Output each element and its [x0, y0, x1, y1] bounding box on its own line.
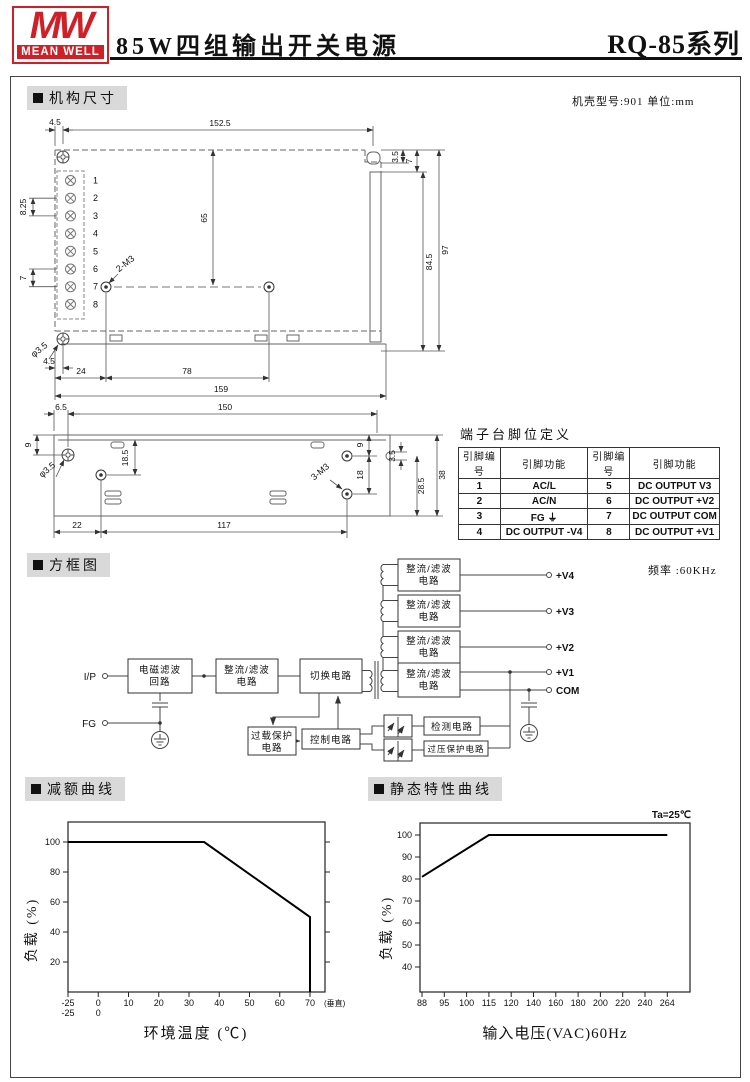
section-label: 减额曲线: [47, 779, 115, 799]
svg-text:7: 7: [93, 282, 98, 292]
svg-text:4.5: 4.5: [43, 356, 55, 366]
x-tick-label: 264: [660, 998, 675, 1008]
static-characteristic-chart: Ta=25℃ 输入电压(VAC)60Hz 负载 (%) 405060708090…: [375, 798, 705, 1048]
x-axis-suffix: (垂直): [324, 998, 346, 1008]
svg-text:整流/滤波: 整流/滤波: [406, 599, 452, 611]
page-title: 85W四组输出开关电源: [116, 26, 400, 61]
x-tick-label: -25: [61, 998, 74, 1008]
svg-text:38: 38: [437, 470, 447, 480]
x-tick-label: 70: [305, 998, 315, 1008]
block-diagram: 电磁滤波 回路 整流/滤波 电路 切换电路 整流/滤波 电路 整流/滤波 电路 …: [30, 551, 740, 775]
dimension-lines: [29, 126, 445, 400]
svg-text:电磁滤波: 电磁滤波: [139, 664, 181, 676]
svg-text:18.5: 18.5: [120, 449, 130, 466]
data-line: [422, 835, 667, 877]
x-tick-label: 0: [96, 998, 101, 1008]
input-terminal: [103, 674, 108, 679]
table-row: 3 FG ⏚ 7 DC OUTPUT COM: [459, 509, 720, 525]
svg-text:5: 5: [93, 246, 98, 256]
x-tick-label: 120: [504, 998, 519, 1008]
col-header: 引脚编号: [588, 448, 630, 479]
pin-definition-table: 端子台脚位定义 引脚编号 引脚功能 引脚编号 引脚功能 1 AC/L 5 DC …: [458, 424, 720, 540]
svg-text:65: 65: [199, 213, 209, 223]
svg-text:3: 3: [93, 211, 98, 221]
table-row: 1 AC/L 5 DC OUTPUT V3: [459, 479, 720, 494]
svg-text:+V3: +V3: [556, 607, 575, 618]
dimension-lines: [33, 410, 443, 538]
svg-text:+V4: +V4: [556, 571, 575, 582]
junction-dot: [202, 674, 206, 678]
svg-text:4.5: 4.5: [49, 117, 61, 127]
mounting-hole: [264, 282, 274, 292]
y-tick-label: 20: [50, 957, 60, 967]
series-title: RQ-85系列: [607, 24, 740, 61]
mechanical-top-view-drawing: 1 2 3 4 5 6 7 8: [15, 116, 450, 408]
x-tick-label: 100: [459, 998, 474, 1008]
x-tick-label-secondary: -25: [61, 1008, 74, 1018]
svg-text:6: 6: [93, 264, 98, 274]
x-tick-label: 200: [593, 998, 608, 1008]
x-tick-label: 88: [417, 998, 427, 1008]
x-tick-label: 95: [439, 998, 449, 1008]
svg-text:整流/滤波: 整流/滤波: [224, 664, 270, 676]
section-square-icon: [31, 784, 41, 794]
svg-text:2-M3: 2-M3: [114, 253, 136, 274]
y-tick-label: 70: [402, 896, 412, 906]
fg-terminal: [103, 721, 108, 726]
section-square-icon: [374, 784, 384, 794]
x-tick-label: 30: [184, 998, 194, 1008]
svg-text:3.5: 3.5: [387, 450, 397, 462]
x-tick-label: 115: [482, 998, 496, 1008]
y-axis-label: 负载 (%): [24, 898, 40, 963]
svg-text:回路: 回路: [149, 676, 170, 688]
svg-text:84.5: 84.5: [424, 253, 434, 270]
svg-text:7: 7: [404, 158, 414, 163]
svg-text:22: 22: [72, 520, 82, 530]
junction-dot: [527, 688, 531, 692]
svg-text:整流/滤波: 整流/滤波: [406, 668, 452, 680]
y-tick-label: 100: [45, 837, 60, 847]
svg-text:18: 18: [355, 470, 365, 480]
x-tick-label: 20: [154, 998, 164, 1008]
svg-text:检测电路: 检测电路: [431, 721, 473, 733]
data-line: [68, 842, 310, 992]
x-tick-label: 140: [526, 998, 541, 1008]
x-axis-label: 环境温度 (℃): [144, 1024, 249, 1042]
svg-text:FG: FG: [82, 719, 96, 730]
output-terminal: [547, 688, 552, 693]
svg-text:1: 1: [93, 176, 98, 186]
svg-text:I/P: I/P: [84, 672, 97, 683]
col-header: 引脚功能: [630, 448, 720, 479]
x-tick-label: 240: [637, 998, 652, 1008]
junction-dot: [508, 670, 512, 674]
case-outline: [55, 150, 386, 344]
svg-text:COM: COM: [556, 686, 579, 697]
x-tick-label: 160: [548, 998, 563, 1008]
logo-mw-text: MW: [14, 8, 107, 44]
svg-text:9: 9: [23, 442, 33, 447]
output-terminal: [547, 609, 552, 614]
io-labels: I/P FG +V4 +V3 +V2 +V1 COM: [82, 571, 579, 730]
corner-screw: [62, 449, 74, 461]
svg-text:78: 78: [182, 366, 192, 376]
corner-screw: [57, 151, 69, 163]
terminal-strip: [57, 171, 84, 319]
col-header: 引脚功能: [500, 448, 588, 479]
meanwell-logo: MW MEAN WELL: [12, 6, 109, 64]
svg-text:3.5: 3.5: [390, 151, 400, 163]
output-terminal: [547, 573, 552, 578]
svg-text:电路: 电路: [261, 742, 282, 754]
section-label: 静态特性曲线: [390, 779, 492, 799]
y-tick-label: 100: [397, 830, 412, 840]
y-tick-label: 80: [50, 867, 60, 877]
svg-text:切换电路: 切换电路: [310, 670, 352, 682]
case-outline: [54, 435, 390, 516]
x-tick-label: 10: [123, 998, 133, 1008]
section-square-icon: [33, 93, 43, 103]
svg-text:7: 7: [18, 275, 28, 280]
table-header-row: 引脚编号 引脚功能 引脚编号 引脚功能: [459, 448, 720, 479]
col-header: 引脚编号: [459, 448, 501, 479]
svg-text:电路: 电路: [236, 676, 257, 688]
temperature-annotation: Ta=25℃: [652, 810, 691, 821]
svg-text:电路: 电路: [418, 680, 439, 692]
section-mechanical: 机构尺寸: [27, 86, 127, 110]
svg-text:8: 8: [93, 299, 98, 309]
table-row: 2 AC/N 6 DC OUTPUT +V2: [459, 494, 720, 509]
table-row: 4 DC OUTPUT -V4 8 DC OUTPUT +V1: [459, 525, 720, 540]
svg-text:+V2: +V2: [556, 643, 575, 654]
output-terminal: [547, 670, 552, 675]
svg-text:电路: 电路: [418, 611, 439, 623]
junction-dot: [158, 721, 162, 725]
title-underline: [110, 57, 742, 60]
pin-table-title: 端子台脚位定义: [460, 424, 720, 443]
svg-text:150: 150: [218, 402, 232, 412]
x-tick-label: 40: [214, 998, 224, 1008]
mounting-hole: [342, 489, 352, 499]
svg-text:控制电路: 控制电路: [310, 734, 352, 746]
mounting-hole: [101, 282, 111, 292]
logo-brand-text: MEAN WELL: [17, 45, 104, 59]
y-tick-label: 60: [50, 897, 60, 907]
svg-text:152.5: 152.5: [209, 118, 231, 128]
y-tick-label: 40: [402, 962, 412, 972]
svg-text:过压保护电路: 过压保护电路: [427, 744, 484, 754]
plot-frame: [68, 822, 325, 992]
y-tick-label: 60: [402, 918, 412, 928]
x-tick-label: 60: [275, 998, 285, 1008]
plot-frame: [420, 823, 690, 992]
x-tick-label: 180: [571, 998, 586, 1008]
y-tick-label: 80: [402, 874, 412, 884]
x-tick-label: 50: [244, 998, 254, 1008]
svg-text:2: 2: [93, 193, 98, 203]
svg-text:9: 9: [355, 442, 365, 447]
mechanical-side-view-drawing: 6.5 150 9 18.5 φ3.5 3-M3 9 18 3.5 28.5 3…: [25, 398, 445, 552]
x-tick-label-secondary: 0: [96, 1008, 101, 1018]
svg-text:159: 159: [214, 384, 228, 394]
svg-text:97: 97: [440, 245, 450, 255]
svg-text:过载保护: 过载保护: [251, 730, 293, 742]
svg-text:整流/滤波: 整流/滤波: [406, 635, 452, 647]
y-tick-label: 50: [402, 940, 412, 950]
svg-text:8.25: 8.25: [18, 198, 28, 215]
svg-text:28.5: 28.5: [416, 477, 426, 494]
svg-text:电路: 电路: [418, 575, 439, 587]
svg-text:3-M3: 3-M3: [309, 461, 331, 482]
derating-chart: 环境温度 (℃) 负载 (%) 20406080100-250102030405…: [20, 798, 350, 1048]
y-tick-label: 40: [50, 927, 60, 937]
svg-text:整流/滤波: 整流/滤波: [406, 563, 452, 575]
svg-text:6.5: 6.5: [55, 402, 67, 412]
section-label: 机构尺寸: [49, 88, 117, 108]
svg-text:117: 117: [217, 520, 231, 530]
datasheet-page: MW MEAN WELL 85W四组输出开关电源 RQ-85系列 机构尺寸 机壳…: [0, 0, 750, 1082]
output-terminal: [547, 645, 552, 650]
x-axis-label: 输入电压(VAC)60Hz: [482, 1025, 627, 1042]
case-note: 机壳型号:901 单位:mm: [572, 93, 694, 109]
mounting-hole: [96, 470, 106, 480]
svg-text:电路: 电路: [418, 647, 439, 659]
svg-text:4: 4: [93, 229, 98, 239]
mounting-hole: [342, 451, 352, 461]
svg-text:24: 24: [76, 366, 86, 376]
dimension-labels: 6.5 150 9 18.5 φ3.5 3-M3 9 18 3.5 28.5 3…: [23, 402, 447, 530]
pin-numbers: 1 2 3 4 5 6 7 8: [93, 176, 98, 310]
x-tick-label: 220: [615, 998, 630, 1008]
dimension-labels: 4.5 152.5 3.5 7 65 84.5 97 2-M3 φ3.5 4.5…: [18, 117, 450, 394]
corner-screw: [57, 333, 69, 345]
y-axis-label: 负载 (%): [379, 896, 395, 961]
y-tick-label: 90: [402, 852, 412, 862]
svg-text:+V1: +V1: [556, 668, 575, 679]
